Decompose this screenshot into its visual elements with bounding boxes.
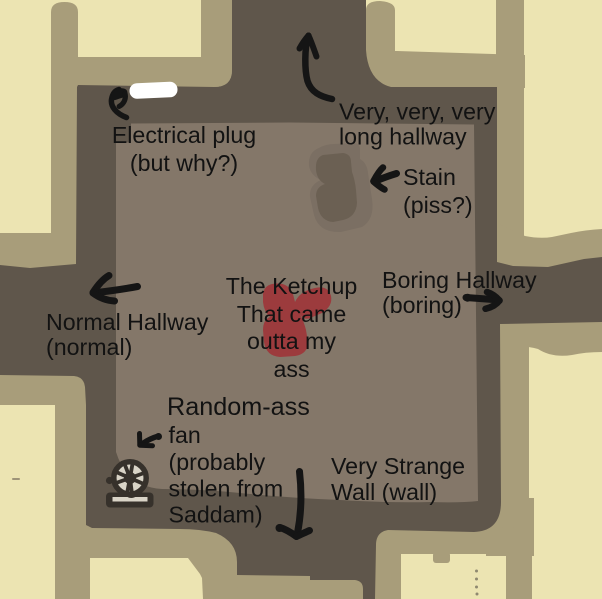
svg-text:Boring Hallway: Boring Hallway — [382, 267, 537, 293]
svg-text:(probably: (probably — [169, 449, 266, 475]
svg-text:(but why?): (but why?) — [130, 150, 238, 176]
svg-text:outta my: outta my — [247, 328, 336, 354]
svg-text:Electrical plug: Electrical plug — [112, 122, 256, 148]
svg-text:Stain: Stain — [403, 164, 456, 190]
svg-text:Very Strange: Very Strange — [331, 453, 465, 479]
svg-text:Wall (wall): Wall (wall) — [331, 479, 437, 505]
svg-text:The Ketchup: The Ketchup — [226, 273, 357, 299]
svg-text:Normal Hallway: Normal Hallway — [46, 309, 209, 335]
svg-text:fan: fan — [169, 422, 201, 448]
svg-text:Random-ass: Random-ass — [167, 393, 310, 421]
svg-text:(normal): (normal) — [46, 334, 132, 360]
svg-text:(piss?): (piss?) — [403, 192, 473, 218]
svg-text:Very, very, very: Very, very, very — [339, 99, 496, 125]
svg-text:Saddam): Saddam) — [169, 502, 263, 528]
svg-text:(boring): (boring) — [382, 292, 462, 318]
svg-text:ass: ass — [273, 356, 309, 382]
svg-text:stolen from: stolen from — [169, 476, 284, 502]
svg-text:That came: That came — [237, 301, 347, 327]
svg-text:long hallway: long hallway — [339, 124, 467, 150]
